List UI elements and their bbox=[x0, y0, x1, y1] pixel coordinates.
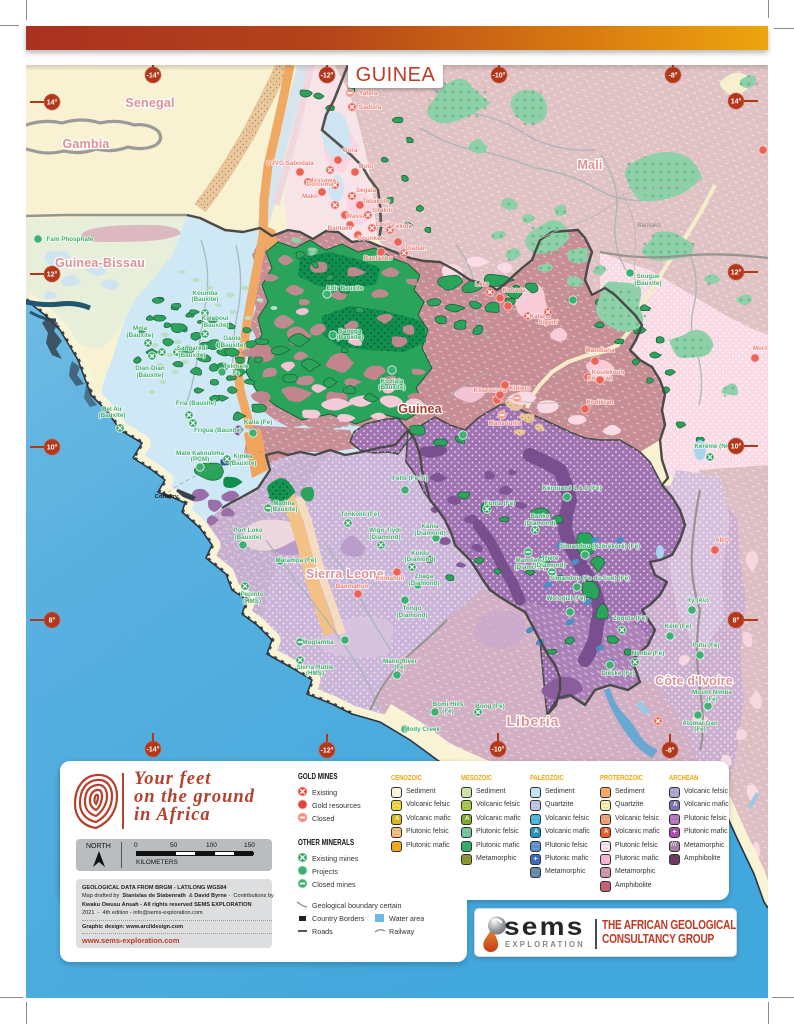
svg-text:Mansounia: Mansounia bbox=[489, 420, 522, 427]
svg-text:Kimba: Kimba bbox=[233, 453, 253, 460]
svg-text:Mount Nimba: Mount Nimba bbox=[692, 689, 732, 696]
svg-text:10°: 10° bbox=[731, 443, 742, 451]
svg-text:Ségala: Ségala bbox=[356, 187, 377, 194]
svg-text:12°: 12° bbox=[731, 269, 742, 277]
svg-text:Marampa (Fe): Marampa (Fe) bbox=[276, 557, 317, 564]
svg-text:-8°: -8° bbox=[665, 747, 674, 755]
svg-text:(Fe): (Fe) bbox=[394, 664, 406, 671]
svg-text:Kiniero: Kiniero bbox=[509, 385, 531, 392]
svg-text:Ity (Au): Ity (Au) bbox=[687, 597, 709, 604]
svg-text:(Bauxite): (Bauxite) bbox=[137, 372, 164, 379]
svg-text:Pepinto: Pepinto bbox=[240, 591, 263, 598]
svg-text:Edir Bauxite: Edir Bauxite bbox=[327, 285, 364, 292]
svg-text:10°: 10° bbox=[47, 444, 58, 452]
svg-text:Mako: Mako bbox=[302, 193, 318, 200]
svg-text:Diécké (Fe): Diécké (Fe) bbox=[601, 670, 635, 677]
svg-text:Kérouané 1 & 2 (Fe): Kérouané 1 & 2 (Fe) bbox=[542, 485, 601, 492]
svg-text:OJVG Sabodala: OJVG Sabodala bbox=[266, 160, 314, 167]
svg-text:Frigua (Bauxite): Frigua (Bauxite) bbox=[194, 427, 242, 434]
svg-text:(Diamond): (Diamond) bbox=[534, 562, 565, 569]
svg-text:14°: 14° bbox=[731, 98, 742, 106]
svg-text:Sadiola: Sadiola bbox=[359, 104, 382, 111]
svg-text:Simandou (Fe du Sud) (Fe): Simandou (Fe du Sud) (Fe) bbox=[550, 575, 630, 582]
svg-text:Golouma: Golouma bbox=[306, 181, 334, 188]
svg-text:Koulékoun: Koulékoun bbox=[592, 369, 625, 376]
svg-text:Sangarédi: Sangarédi bbox=[177, 345, 208, 352]
svg-text:Kodiéran: Kodiéran bbox=[586, 399, 613, 406]
svg-text:Fe: Fe bbox=[232, 370, 240, 377]
svg-text:12°: 12° bbox=[47, 271, 58, 279]
svg-text:Tonkolili (Fe): Tonkolili (Fe) bbox=[341, 511, 380, 518]
svg-text:(Fe): (Fe) bbox=[694, 726, 706, 733]
svg-text:Siguiri: Siguiri bbox=[538, 319, 558, 326]
svg-text:Sougue: Sougue bbox=[636, 273, 660, 280]
svg-text:Zogota (Fe): Zogota (Fe) bbox=[613, 615, 647, 622]
svg-text:-10°: -10° bbox=[493, 72, 506, 80]
svg-text:Nimba (Fe): Nimba (Fe) bbox=[632, 650, 665, 657]
svg-text:(Bauxite): (Bauxite) bbox=[99, 412, 126, 419]
svg-text:Bantako: Bantako bbox=[328, 225, 353, 232]
svg-text:Simandou (Nzérékoré) (Fe): Simandou (Nzérékoré) (Fe) bbox=[560, 543, 640, 550]
svg-text:(Diamond): (Diamond) bbox=[408, 580, 439, 587]
svg-text:-8°: -8° bbox=[668, 72, 677, 80]
svg-text:Baomahun: Baomahun bbox=[336, 583, 369, 590]
svg-text:Sierra Leone: Sierra Leone bbox=[306, 567, 384, 581]
svg-text:Dian-Dian: Dian-Dian bbox=[135, 365, 165, 372]
svg-text:(Bauxite): (Bauxite) bbox=[192, 296, 219, 303]
svg-text:Boto: Boto bbox=[359, 163, 373, 170]
svg-text:(Diamond): (Diamond) bbox=[369, 534, 400, 541]
svg-text:Fam Phosphate: Fam Phosphate bbox=[47, 236, 94, 243]
svg-text:14°: 14° bbox=[47, 99, 58, 107]
svg-text:Wigo Tiydi: Wigo Tiydi bbox=[369, 527, 401, 534]
svg-text:Komahun: Komahun bbox=[375, 575, 404, 582]
svg-text:-12°: -12° bbox=[321, 72, 334, 80]
svg-text:(Bauxite): (Bauxite) bbox=[202, 322, 229, 329]
svg-text:Wassa: Wassa bbox=[346, 213, 366, 220]
svg-text:Fekola: Fekola bbox=[392, 223, 412, 230]
svg-text:Kélé (Fe): Kélé (Fe) bbox=[665, 623, 692, 630]
svg-text:Kania: Kania bbox=[421, 523, 439, 530]
svg-text:8°: 8° bbox=[733, 617, 740, 625]
svg-text:(Bauxite): (Bauxite) bbox=[379, 384, 406, 391]
svg-text:(Diamond): (Diamond) bbox=[414, 530, 445, 537]
svg-text:(HMS): (HMS) bbox=[306, 670, 324, 677]
svg-text:Gora: Gora bbox=[343, 147, 358, 154]
svg-text:-14°: -14° bbox=[147, 746, 160, 754]
svg-text:(Bauxite): (Bauxite) bbox=[635, 280, 662, 287]
svg-text:(Bauxite): (Bauxite) bbox=[235, 534, 262, 541]
svg-text:Guinea-Bissau: Guinea-Bissau bbox=[55, 256, 145, 270]
svg-text:Sitakili: Sitakili bbox=[372, 207, 393, 214]
svg-text:Yatela: Yatela bbox=[359, 90, 378, 97]
svg-text:(Bauxite): (Bauxite) bbox=[127, 332, 154, 339]
svg-text:Liberia: Liberia bbox=[507, 713, 560, 729]
svg-text:(Bauxite): (Bauxite) bbox=[179, 352, 206, 359]
svg-text:Fria (Bauxite): Fria (Bauxite) bbox=[176, 400, 216, 407]
svg-text:Mandiana: Mandiana bbox=[585, 347, 615, 354]
svg-text:(HMS): (HMS) bbox=[243, 598, 261, 605]
svg-text:Senegal: Senegal bbox=[125, 96, 174, 110]
svg-text:-10°: -10° bbox=[492, 746, 505, 754]
svg-text:(Bauxite): (Bauxite) bbox=[337, 334, 364, 341]
svg-text:Putu (Fe): Putu (Fe) bbox=[692, 642, 719, 649]
svg-text:(Diamond): (Diamond) bbox=[396, 612, 427, 619]
svg-text:Banko: Banko bbox=[530, 513, 549, 520]
svg-text:Diaban: Diaban bbox=[406, 245, 427, 252]
svg-text:Triété: Triété bbox=[542, 555, 559, 562]
svg-text:Conakry: Conakry bbox=[155, 494, 179, 500]
svg-text:Kérémé (Ni): Kérémé (Ni) bbox=[694, 443, 729, 450]
svg-text:Guinea: Guinea bbox=[398, 402, 442, 416]
svg-text:(Fe): (Fe) bbox=[442, 708, 454, 715]
svg-text:-14°: -14° bbox=[147, 72, 160, 80]
svg-text:Gambia: Gambia bbox=[62, 137, 110, 151]
svg-text:Bantanko: Bantanko bbox=[364, 255, 393, 262]
svg-text:Bamako: Bamako bbox=[637, 222, 661, 229]
svg-text:Telimele: Telimele bbox=[224, 363, 249, 370]
svg-text:Gounkoto: Gounkoto bbox=[357, 235, 387, 242]
svg-text:Morila: Morila bbox=[753, 345, 768, 352]
svg-text:Moglamba: Moglamba bbox=[302, 639, 334, 646]
svg-text:Port Loko: Port Loko bbox=[233, 527, 263, 534]
svg-text:Kobada: Kobada bbox=[502, 287, 526, 294]
svg-text:8°: 8° bbox=[49, 617, 56, 625]
svg-text:(Bauxite): (Bauxite) bbox=[271, 506, 298, 513]
svg-text:Zoaga: Zoaga bbox=[415, 573, 434, 580]
svg-text:Gaola: Gaola bbox=[223, 335, 241, 342]
svg-text:Bong (Fe): Bong (Fe) bbox=[475, 703, 504, 710]
svg-text:ABQ: ABQ bbox=[715, 537, 729, 544]
svg-text:(Bauxite): (Bauxite) bbox=[219, 342, 246, 349]
svg-text:Mali: Mali bbox=[577, 158, 602, 172]
svg-text:Tabakoto: Tabakoto bbox=[362, 198, 390, 205]
svg-text:(Diamond): (Diamond) bbox=[404, 556, 435, 563]
svg-text:Wologizi (Fe): Wologizi (Fe) bbox=[546, 595, 585, 602]
svg-text:Léro: Léro bbox=[475, 281, 489, 288]
svg-text:(PGM): (PGM) bbox=[191, 456, 210, 463]
svg-text:Mola: Mola bbox=[133, 325, 148, 332]
svg-text:(Fe): (Fe) bbox=[706, 696, 718, 703]
svg-text:Côte d'Ivoire: Côte d'Ivoire bbox=[655, 674, 733, 688]
svg-text:Kalia (Fe): Kalia (Fe) bbox=[244, 419, 272, 426]
svg-text:Bomi Hills: Bomi Hills bbox=[433, 701, 464, 708]
svg-text:Kolaboui: Kolaboui bbox=[202, 315, 229, 322]
svg-text:(Diamond): (Diamond) bbox=[524, 520, 555, 527]
svg-text:Fello (Fe-Ti): Fello (Fe-Ti) bbox=[392, 475, 428, 482]
svg-text:Tongo: Tongo bbox=[403, 605, 422, 612]
svg-text:-12°: -12° bbox=[321, 747, 334, 755]
svg-text:Fonta (Fe): Fonta (Fe) bbox=[485, 500, 515, 507]
svg-text:Mody Creek: Mody Creek bbox=[404, 726, 440, 733]
